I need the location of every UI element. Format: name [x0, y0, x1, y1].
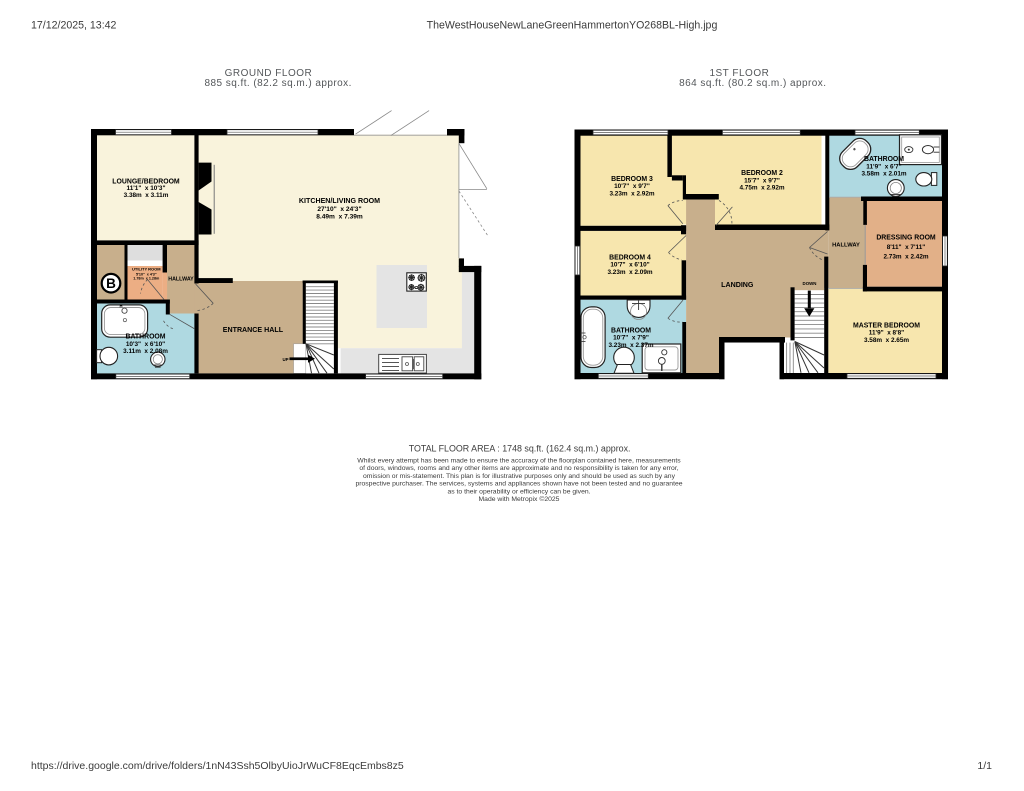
svg-text:1/1: 1/1: [977, 760, 992, 772]
svg-text:Made with Metropix ©2025: Made with Metropix ©2025: [479, 495, 560, 503]
svg-text:10'7" x 9'7": 10'7" x 9'7": [614, 183, 650, 190]
svg-text:8'11" x 7'11": 8'11" x 7'11": [887, 244, 926, 251]
svg-text:10'7" x 7'9": 10'7" x 7'9": [613, 335, 649, 342]
svg-text:11'9" x 6'7": 11'9" x 6'7": [866, 163, 901, 170]
svg-text:3.23m x 2.92m: 3.23m x 2.92m: [609, 190, 654, 197]
svg-text:1.78m x 1.28m: 1.78m x 1.28m: [133, 277, 160, 281]
svg-text:MASTER BEDROOM: MASTER BEDROOM: [853, 323, 920, 330]
svg-text:BATHROOM: BATHROOM: [864, 156, 904, 163]
svg-text:TOTAL FLOOR AREA : 1748 sq.ft.: TOTAL FLOOR AREA : 1748 sq.ft. (162.4 sq…: [409, 444, 631, 454]
svg-text:3.58m x 2.01m: 3.58m x 2.01m: [861, 171, 906, 178]
svg-text:DOWN: DOWN: [803, 281, 817, 286]
svg-text:of doors, windows, rooms and a: of doors, windows, rooms and any other i…: [359, 465, 678, 472]
svg-text:HALLWAY: HALLWAY: [832, 242, 860, 248]
svg-text:8.49m x 7.39m: 8.49m x 7.39m: [316, 214, 363, 221]
svg-text:BATHROOM: BATHROOM: [611, 327, 651, 334]
svg-text:LANDING: LANDING: [721, 281, 754, 289]
svg-text:ENTRANCE HALL: ENTRANCE HALL: [223, 326, 284, 334]
svg-text:DRESSING ROOM: DRESSING ROOM: [876, 235, 936, 242]
svg-text:3.58m x 2.65m: 3.58m x 2.65m: [864, 337, 909, 344]
svg-text:prospective purchaser. The ser: prospective purchaser. The services, sys…: [355, 481, 682, 488]
svg-text:15'7" x 9'7": 15'7" x 9'7": [744, 177, 780, 184]
svg-text:885 sq.ft. (82.2 sq.m.) approx: 885 sq.ft. (82.2 sq.m.) approx.: [205, 78, 352, 89]
svg-text:TheWestHouseNewLaneGreenHammer: TheWestHouseNewLaneGreenHammertonYO268BL…: [427, 20, 718, 32]
svg-text:17/12/2025, 13:42: 17/12/2025, 13:42: [31, 20, 117, 32]
svg-text:UTILITY ROOM: UTILITY ROOM: [132, 266, 161, 271]
svg-text:BEDROOM 3: BEDROOM 3: [611, 176, 653, 183]
svg-text:10'3" x 6'10": 10'3" x 6'10": [126, 341, 165, 348]
svg-text:BEDROOM 4: BEDROOM 4: [609, 255, 651, 262]
svg-text:as to their operability or eff: as to their operability or efficiency ca…: [447, 488, 590, 495]
svg-text:3.23m x 2.37m: 3.23m x 2.37m: [608, 342, 653, 349]
svg-text:4.75m x 2.92m: 4.75m x 2.92m: [739, 185, 784, 192]
svg-text:11'9" x 8'8": 11'9" x 8'8": [869, 330, 904, 337]
svg-text:UP: UP: [282, 357, 288, 362]
svg-text:3.38m x 3.11m: 3.38m x 3.11m: [124, 192, 169, 199]
svg-text:HALLWAY: HALLWAY: [168, 277, 194, 283]
svg-text:H: H: [119, 303, 122, 308]
svg-text:3.11m x 2.08m: 3.11m x 2.08m: [123, 348, 168, 355]
svg-text:3.23m x 2.09m: 3.23m x 2.09m: [607, 269, 652, 276]
svg-text:BEDROOM 2: BEDROOM 2: [741, 170, 783, 177]
svg-text:10'7" x 6'10": 10'7" x 6'10": [610, 262, 649, 269]
svg-text:2.73m x 2.42m: 2.73m x 2.42m: [883, 253, 928, 260]
svg-text:omission or mis-statement. Thi: omission or mis-statement. This plan is …: [363, 473, 676, 480]
svg-text:BATHROOM: BATHROOM: [125, 334, 165, 341]
svg-text:B: B: [106, 276, 116, 291]
svg-text:27'10" x 24'3": 27'10" x 24'3": [317, 206, 361, 213]
svg-text:864 sq.ft. (80.2 sq.m.) approx: 864 sq.ft. (80.2 sq.m.) approx.: [679, 78, 826, 89]
svg-text:https://drive.google.com/drive: https://drive.google.com/drive/folders/1…: [31, 760, 404, 772]
svg-text:Whilst every attempt has been: Whilst every attempt has been made to en…: [357, 458, 681, 465]
svg-text:KITCHEN/LIVING ROOM: KITCHEN/LIVING ROOM: [299, 197, 380, 205]
